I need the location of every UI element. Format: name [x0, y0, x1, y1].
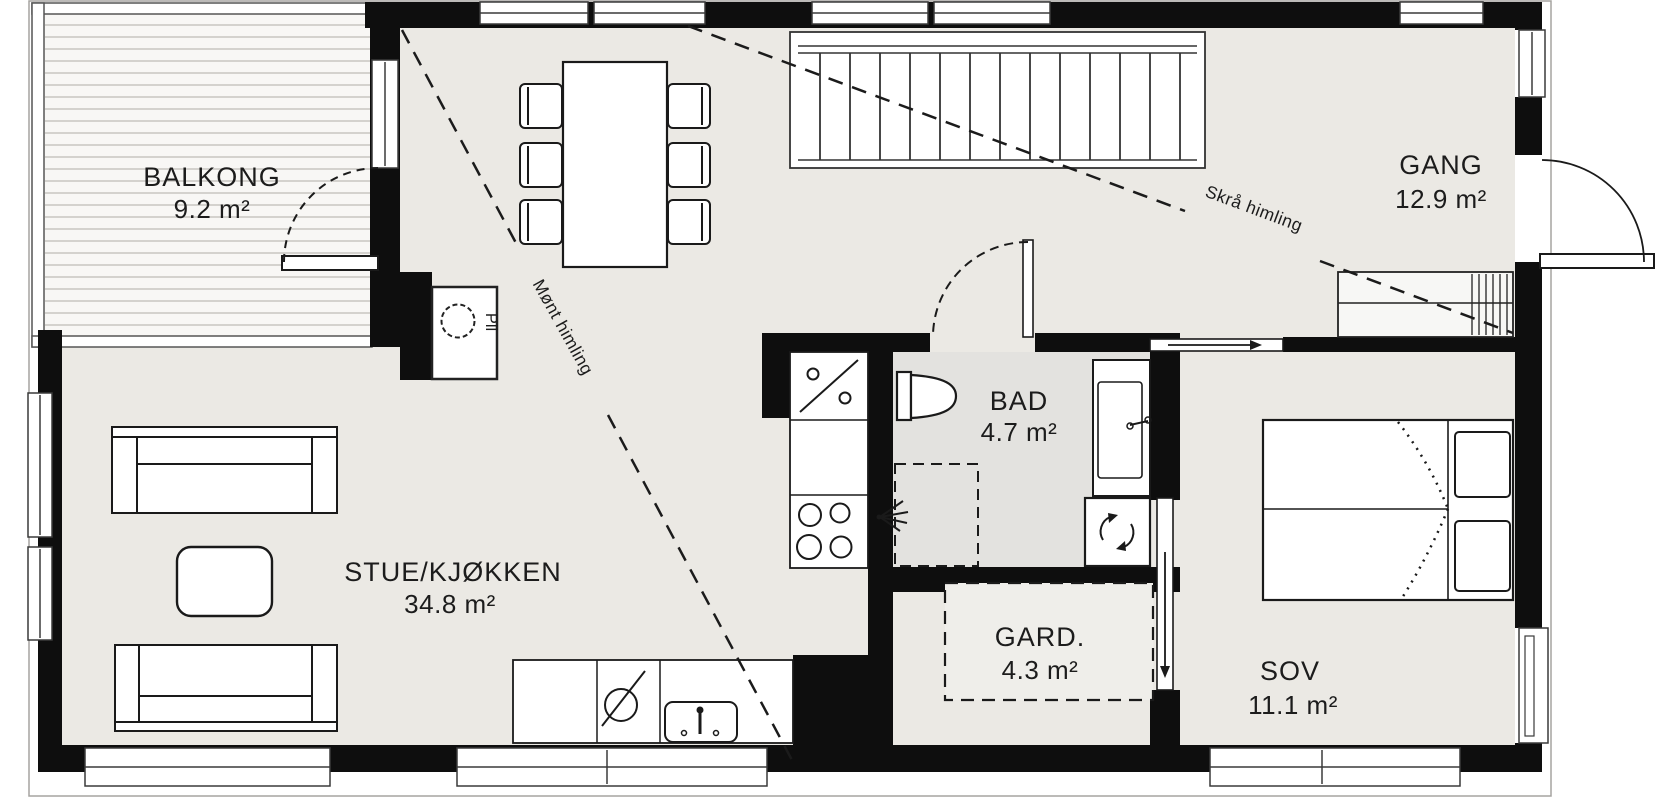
kitchen-counter-left — [790, 352, 868, 568]
chair — [520, 143, 562, 187]
label-gard: GARD. — [995, 622, 1086, 652]
label-stue-area: 34.8 m² — [404, 589, 496, 619]
balcony-rail-bottom — [32, 336, 372, 347]
wall-gard-sov-b — [1150, 690, 1180, 745]
balcony-door-leaf — [282, 256, 378, 270]
label-stue: STUE/KJØKKEN — [344, 557, 562, 587]
floorplan-drawing: Pll BALKONG 9.2 m² STUE/KJØKKEN 34.8 m² … — [0, 0, 1670, 800]
chair — [668, 143, 710, 187]
coffee-table — [177, 547, 272, 616]
pillow — [1455, 432, 1510, 497]
label-bad: BAD — [990, 386, 1049, 416]
dining-set — [520, 62, 710, 267]
vanity-sink — [1093, 360, 1151, 496]
sofa-bottom — [115, 645, 337, 731]
chair — [668, 84, 710, 128]
pillow — [1455, 521, 1510, 591]
wall-right-a — [1515, 2, 1542, 30]
pillar-label: Pll — [482, 313, 500, 331]
wall-right-c — [1515, 262, 1542, 628]
label-balkong: BALKONG — [143, 162, 281, 192]
wall-bath-left — [868, 352, 893, 745]
balcony-rail-top — [32, 3, 372, 14]
chair — [520, 200, 562, 244]
label-balkong-area: 9.2 m² — [174, 194, 251, 224]
wall-balcony — [370, 2, 400, 347]
label-sov-area: 11.1 m² — [1248, 690, 1338, 720]
wall-bath-top-a — [762, 333, 930, 352]
chair — [520, 84, 562, 128]
staircase — [790, 32, 1205, 168]
washing-machine — [1085, 498, 1150, 566]
sofa-top — [112, 427, 337, 513]
chair — [668, 200, 710, 244]
label-bad-area: 4.7 m² — [981, 417, 1058, 447]
kitchen-counter-bottom — [513, 660, 793, 743]
wall-bottom-stub — [793, 655, 871, 745]
label-gard-area: 4.3 m² — [1002, 655, 1079, 685]
label-sov: SOV — [1260, 656, 1320, 686]
entrance-door-swing — [1542, 160, 1644, 262]
kitchen-sink — [665, 702, 737, 742]
floorplan-canvas: Pll BALKONG 9.2 m² STUE/KJØKKEN 34.8 m² … — [0, 0, 1670, 800]
gang-closet — [1338, 272, 1513, 337]
label-gang: GANG — [1399, 150, 1483, 180]
wall-right-b — [1515, 97, 1542, 155]
pillar-fixture: Pll — [432, 287, 500, 379]
wall-corner-block — [400, 272, 432, 380]
label-gang-area: 12.9 m² — [1395, 184, 1487, 214]
bath-door-leaf — [1023, 240, 1033, 337]
wall-gard-sov-a — [1150, 337, 1180, 500]
dining-table — [563, 62, 667, 267]
balcony-rail-left — [32, 3, 44, 347]
entrance-door-leaf — [1540, 254, 1654, 268]
wall-gang-sov — [1283, 337, 1515, 352]
